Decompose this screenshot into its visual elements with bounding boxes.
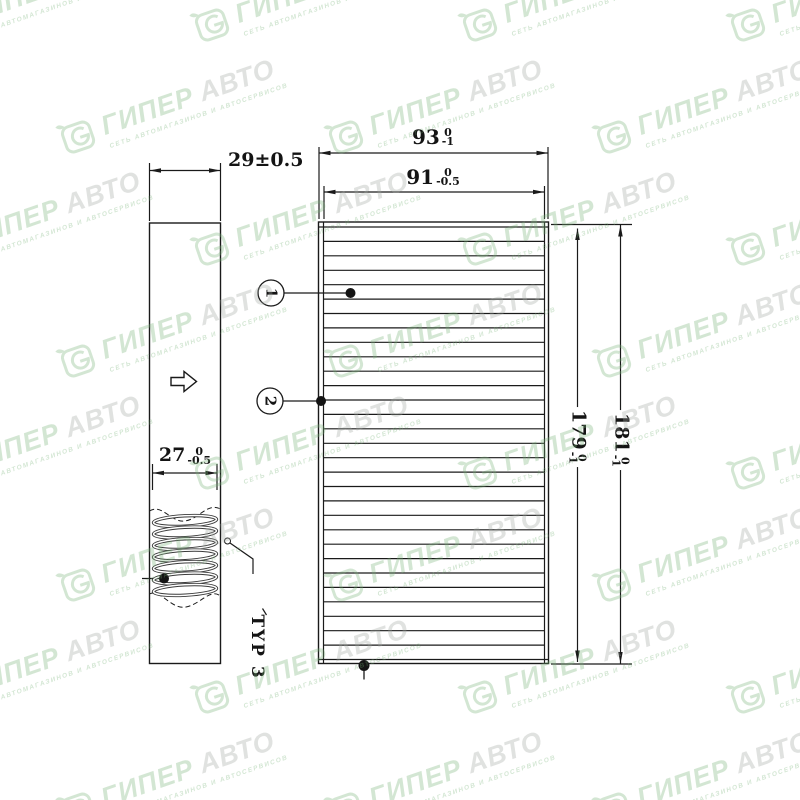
callout-1-circle [258, 280, 284, 306]
callout-balloons [159, 280, 370, 680]
leader-attach-circle [225, 538, 231, 544]
filter-pleat-lines [324, 241, 545, 645]
callout-2-circle [257, 388, 283, 414]
technical-drawing-canvas: 930-1 910-0.5 29±0.5 270-0.5 1790-1 1810… [0, 0, 800, 800]
front-view [319, 147, 633, 664]
pleat-coil-detail [153, 514, 216, 597]
airflow-arrow-icon [171, 372, 197, 392]
drawing-linework [0, 0, 800, 800]
